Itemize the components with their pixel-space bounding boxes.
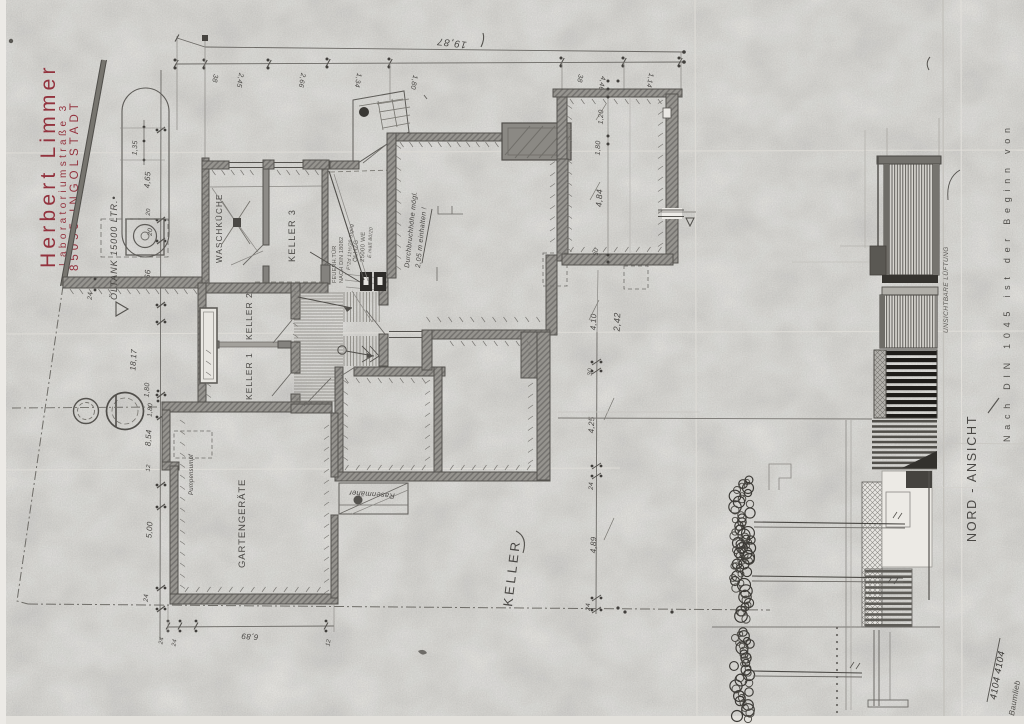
svg-text:UNSICHTBARE LÜFTUNG: UNSICHTBARE LÜFTUNG bbox=[942, 246, 950, 333]
svg-text:NACH DIN 18082: NACH DIN 18082 bbox=[339, 237, 345, 283]
svg-text:24: 24 bbox=[143, 594, 150, 603]
svg-text:24: 24 bbox=[87, 292, 94, 301]
svg-text:12: 12 bbox=[146, 464, 152, 472]
svg-text:25000 WE: 25000 WE bbox=[360, 231, 367, 262]
svg-text:30: 30 bbox=[587, 368, 594, 376]
svg-text:WASCHKÜCHE: WASCHKÜCHE bbox=[215, 194, 224, 263]
svg-text:KELLER 3: KELLER 3 bbox=[287, 209, 297, 262]
svg-text:1,80: 1,80 bbox=[144, 382, 152, 397]
svg-text:38: 38 bbox=[210, 74, 218, 83]
svg-text:Herbert Limmer: Herbert Limmer bbox=[37, 63, 60, 268]
svg-text:ÖLTANK 15000 LTR.•: ÖLTANK 15000 LTR.• bbox=[109, 195, 119, 300]
svg-text:20: 20 bbox=[147, 228, 154, 237]
svg-text:ÖLHZG: ÖLHZG bbox=[352, 240, 360, 262]
svg-text:6,89: 6,89 bbox=[241, 631, 259, 641]
svg-text:KELLER 2: KELLER 2 bbox=[244, 292, 254, 340]
svg-text:GARTENGERÄTE: GARTENGERÄTE bbox=[237, 479, 248, 568]
svg-text:KELLER 1: KELLER 1 bbox=[244, 352, 254, 400]
svg-text:38: 38 bbox=[575, 74, 583, 83]
svg-text:2,42: 2,42 bbox=[612, 312, 623, 332]
svg-text:24: 24 bbox=[588, 482, 595, 491]
svg-text:24: 24 bbox=[585, 603, 592, 612]
svg-text:4,65: 4,65 bbox=[143, 171, 153, 188]
svg-text:FEUERH.TÜR: FEUERH.TÜR bbox=[331, 246, 338, 283]
svg-text:20: 20 bbox=[146, 208, 152, 217]
svg-text:Laboratoriumstraße 3: Laboratoriumstraße 3 bbox=[58, 102, 69, 266]
svg-text:NORD - ANSICHT: NORD - ANSICHT bbox=[965, 415, 979, 542]
svg-text:4,84: 4,84 bbox=[594, 189, 605, 207]
svg-text:Pumpensumpf: Pumpensumpf bbox=[189, 453, 195, 495]
svg-text:4,89: 4,89 bbox=[589, 536, 599, 553]
svg-text:18,17: 18,17 bbox=[128, 349, 138, 371]
svg-text:1,80: 1,80 bbox=[595, 140, 603, 155]
svg-text:4,25: 4,25 bbox=[587, 416, 597, 433]
svg-text:5,00: 5,00 bbox=[145, 521, 155, 538]
svg-text:1,80: 1,80 bbox=[147, 403, 155, 417]
svg-text:8,54: 8,54 bbox=[144, 429, 154, 446]
svg-text:1,35: 1,35 bbox=[132, 140, 140, 155]
